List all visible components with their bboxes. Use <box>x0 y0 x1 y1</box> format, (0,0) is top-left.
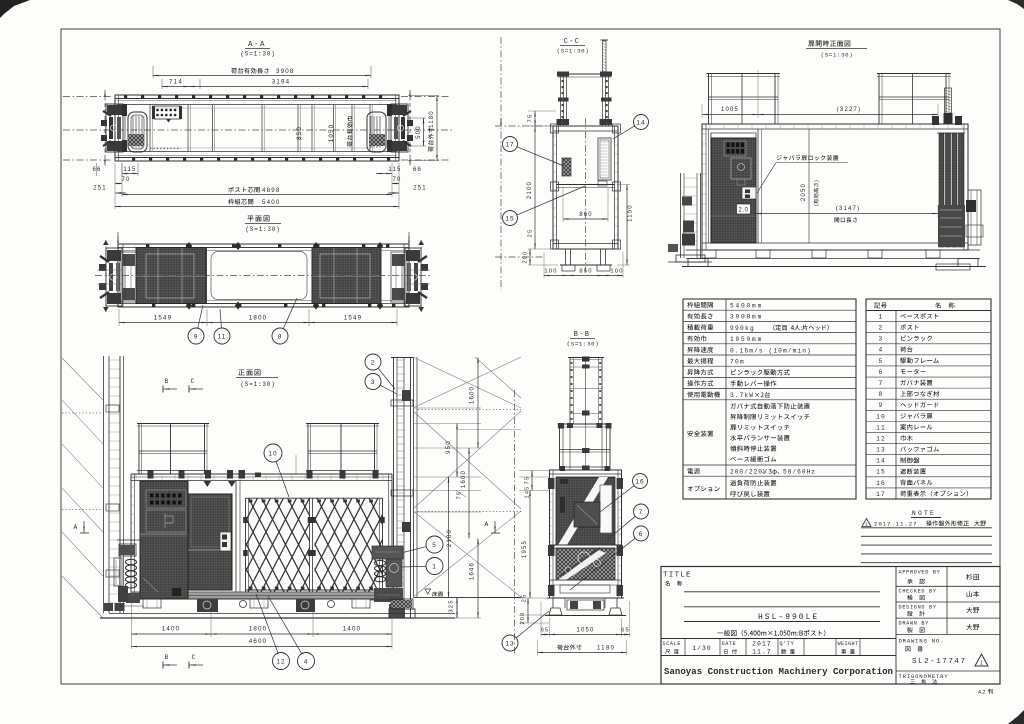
svg-text:13: 13 <box>876 447 886 454</box>
svg-text:(S=1:30): (S=1:30) <box>567 341 600 348</box>
svg-text:15: 15 <box>505 215 514 222</box>
svg-text:5400mm: 5400mm <box>730 303 763 310</box>
svg-text:75: 75 <box>457 491 463 500</box>
svg-text:11: 11 <box>876 424 886 431</box>
svg-text:3: 3 <box>371 379 376 386</box>
svg-text:SCALE: SCALE <box>663 641 682 647</box>
svg-text:1549: 1549 <box>154 315 173 322</box>
svg-text:1050mm: 1050mm <box>730 336 763 343</box>
svg-text:1549: 1549 <box>344 315 363 322</box>
svg-text:B-B: B-B <box>574 331 591 339</box>
svg-text:2: 2 <box>371 359 376 366</box>
svg-text:7: 7 <box>639 509 644 516</box>
svg-text:4600: 4600 <box>249 638 268 645</box>
svg-text:950: 950 <box>446 440 452 454</box>
svg-text:145: 145 <box>525 486 531 499</box>
svg-text:850: 850 <box>579 269 592 275</box>
svg-text:NOTE: NOTE <box>912 510 936 517</box>
svg-text:1400: 1400 <box>343 626 362 633</box>
svg-text:(3147): (3147) <box>836 206 861 212</box>
svg-text:115: 115 <box>123 167 136 173</box>
svg-text:850: 850 <box>296 126 303 140</box>
svg-text:C: C <box>192 654 197 661</box>
svg-text:(S=1:30): (S=1:30) <box>240 51 275 58</box>
svg-text:2100: 2100 <box>527 181 533 199</box>
svg-text:(S=1:30): (S=1:30) <box>245 226 280 233</box>
svg-text:A: A <box>74 524 79 531</box>
svg-text:14: 14 <box>876 458 886 465</box>
svg-text:70m: 70m <box>730 359 745 366</box>
svg-text:3: 3 <box>879 336 884 343</box>
svg-text:70: 70 <box>121 177 130 183</box>
svg-text:17: 17 <box>505 141 514 148</box>
svg-text:CHECKED BY: CHECKED BY <box>899 589 937 595</box>
svg-text:APPROVED BY: APPROVED BY <box>899 570 941 576</box>
svg-text:3908: 3908 <box>276 68 295 75</box>
svg-text:16: 16 <box>876 480 886 487</box>
svg-text:4: 4 <box>879 347 884 354</box>
svg-text:6: 6 <box>879 369 884 376</box>
svg-text:860: 860 <box>579 212 593 218</box>
svg-text:9: 9 <box>879 402 884 409</box>
svg-text:(S=1:30): (S=1:30) <box>821 52 854 59</box>
svg-text:Sanoyas Construction Machinery: Sanoyas Construction Machinery Corporati… <box>664 666 893 677</box>
svg-text:A2: A2 <box>978 689 986 696</box>
svg-text:4898: 4898 <box>262 187 281 194</box>
svg-text:1600: 1600 <box>470 386 476 404</box>
svg-text:8: 8 <box>879 391 884 398</box>
svg-text:1955: 1955 <box>522 540 528 558</box>
svg-text:25: 25 <box>528 229 534 238</box>
svg-text:990kg: 990kg <box>730 325 755 332</box>
svg-text:25: 25 <box>522 594 528 603</box>
svg-text:1646: 1646 <box>470 562 476 580</box>
svg-text:2.0: 2.0 <box>738 208 748 214</box>
svg-text:66: 66 <box>92 167 101 173</box>
svg-text:1180: 1180 <box>597 645 615 652</box>
svg-text:1: 1 <box>879 313 884 320</box>
svg-text:10: 10 <box>876 413 886 420</box>
svg-text:251: 251 <box>93 186 107 192</box>
svg-text:1600: 1600 <box>461 470 467 488</box>
svg-text:A: A <box>485 521 490 528</box>
svg-text:1: 1 <box>865 522 868 527</box>
svg-text:1050: 1050 <box>576 628 594 634</box>
svg-text:2: 2 <box>879 325 884 332</box>
svg-text:5: 5 <box>432 542 437 549</box>
svg-text:2017.11.27: 2017.11.27 <box>874 521 917 528</box>
svg-text:DESIGND BY: DESIGND BY <box>899 605 937 611</box>
svg-text:TITLE: TITLE <box>663 572 692 580</box>
svg-text:2017: 2017 <box>752 641 772 648</box>
svg-text:6: 6 <box>639 531 644 538</box>
svg-text:DRAWING NO.: DRAWING NO. <box>899 638 945 645</box>
svg-text:1150: 1150 <box>628 204 634 222</box>
svg-text:0.16m/s (10m/min): 0.16m/s (10m/min) <box>730 347 812 354</box>
svg-text:65: 65 <box>541 628 550 634</box>
svg-text:200: 200 <box>520 612 526 625</box>
svg-text:C-C: C-C <box>564 38 581 46</box>
svg-text:9: 9 <box>194 333 199 340</box>
svg-text:(S=1:30): (S=1:30) <box>557 48 590 55</box>
svg-text:10: 10 <box>268 450 277 457</box>
svg-text:17: 17 <box>876 491 886 498</box>
svg-text:1180: 1180 <box>429 110 435 128</box>
svg-text:500: 500 <box>416 125 422 139</box>
svg-text:1/30: 1/30 <box>692 645 711 652</box>
svg-text:2100: 2100 <box>447 529 453 547</box>
svg-text:DATE: DATE <box>722 641 737 647</box>
svg-text:Q'TY: Q'TY <box>780 641 795 647</box>
svg-text:7: 7 <box>879 380 884 387</box>
svg-text:714: 714 <box>169 79 183 86</box>
svg-text:1: 1 <box>980 661 983 667</box>
svg-text:15: 15 <box>876 469 886 476</box>
svg-text:100: 100 <box>610 269 623 275</box>
svg-text:200/220V: 200/220V <box>730 469 768 476</box>
svg-text:(3227): (3227) <box>837 107 862 113</box>
svg-text:11.7: 11.7 <box>752 649 772 656</box>
svg-text:75: 75 <box>528 114 534 123</box>
svg-text:A-A: A-A <box>248 41 266 49</box>
svg-text:WEIGHT: WEIGHT <box>838 641 859 647</box>
svg-text:13: 13 <box>505 640 514 647</box>
svg-text:2050: 2050 <box>801 183 807 201</box>
svg-text:(S=1:30): (S=1:30) <box>240 381 275 388</box>
svg-text:3.7kW: 3.7kW <box>730 392 754 399</box>
svg-text:3908mm: 3908mm <box>730 314 763 321</box>
svg-text:16: 16 <box>635 478 644 485</box>
svg-text:C: C <box>191 378 196 385</box>
svg-text:100: 100 <box>544 269 557 275</box>
svg-text:B: B <box>165 654 170 661</box>
svg-text:1: 1 <box>432 563 437 570</box>
svg-text:70: 70 <box>392 177 401 183</box>
svg-text:1400: 1400 <box>162 626 181 633</box>
svg-text:14: 14 <box>636 119 645 126</box>
svg-text:75: 75 <box>525 476 531 485</box>
svg-text:1005: 1005 <box>721 107 739 113</box>
svg-text:DRAWN BY: DRAWN BY <box>899 621 930 627</box>
svg-text:1050: 1050 <box>328 124 335 143</box>
svg-text:HSL-990LE: HSL-990LE <box>758 613 819 622</box>
svg-text:1800: 1800 <box>249 315 268 322</box>
svg-text:3194: 3194 <box>272 79 291 86</box>
svg-text:251: 251 <box>413 186 427 192</box>
svg-text:65: 65 <box>621 628 630 634</box>
svg-text:66: 66 <box>413 167 422 173</box>
svg-text:8: 8 <box>278 333 283 340</box>
svg-text:TRIGONOMETRY: TRIGONOMETRY <box>899 673 949 680</box>
svg-text:B: B <box>165 378 170 385</box>
svg-text:1800: 1800 <box>249 626 268 633</box>
svg-text:12: 12 <box>276 658 285 665</box>
svg-text:11: 11 <box>218 333 227 340</box>
svg-text:5400: 5400 <box>262 199 281 206</box>
svg-text:4: 4 <box>304 658 309 665</box>
svg-text:SL2-17747: SL2-17747 <box>912 658 967 666</box>
svg-text:5: 5 <box>879 358 884 365</box>
svg-text:325: 325 <box>449 599 455 612</box>
svg-text:50/60Hz: 50/60Hz <box>783 469 816 476</box>
svg-text:115: 115 <box>388 167 401 173</box>
svg-text:12: 12 <box>876 435 886 442</box>
